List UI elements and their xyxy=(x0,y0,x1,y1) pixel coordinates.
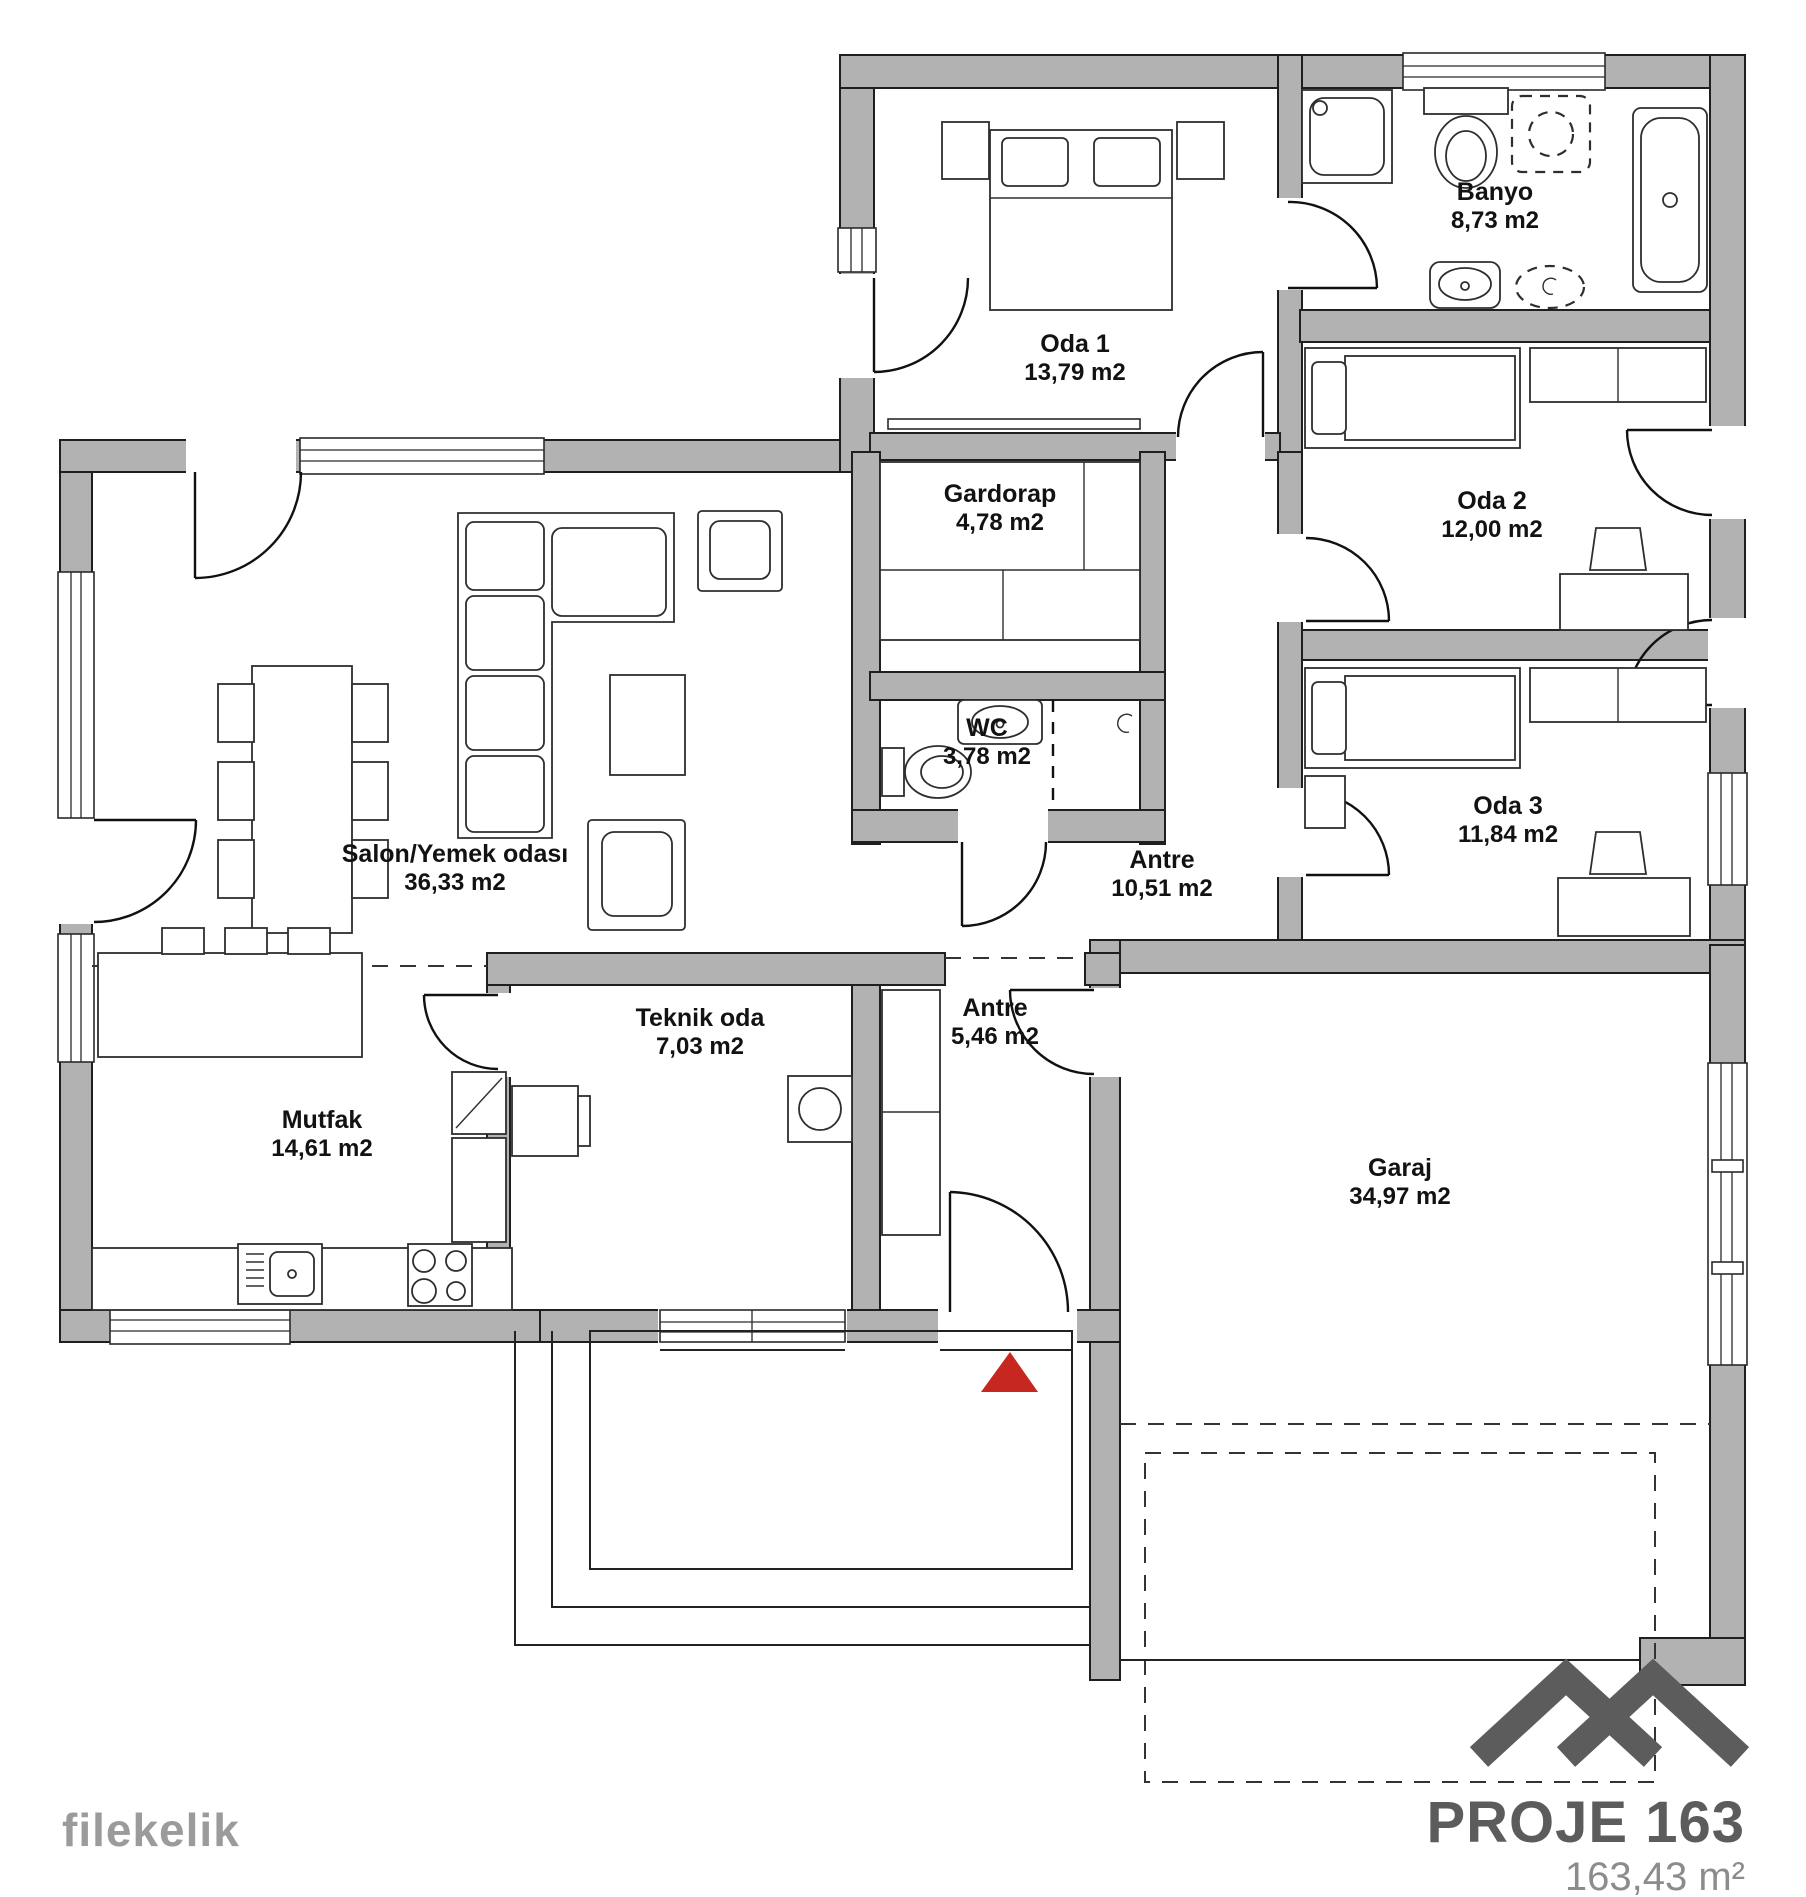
window-salon-left xyxy=(58,572,94,818)
window-garage-right xyxy=(1708,1063,1747,1365)
label-salon-area: 36,33 m2 xyxy=(404,869,505,896)
washer-dashed xyxy=(1512,96,1590,172)
floor-plan: Oda 1 13,79 m2 Banyo 8,73 m2 Gardorap 4,… xyxy=(0,0,1806,1897)
label-gardorap-area: 4,78 m2 xyxy=(956,509,1044,536)
kitchen-island-counter xyxy=(98,953,362,1057)
wardrobe xyxy=(1530,348,1706,402)
stove-cooktop xyxy=(408,1244,472,1306)
shower-tray xyxy=(1302,90,1392,183)
bar-stool xyxy=(225,928,267,954)
label-garaj-name: Garaj xyxy=(1368,1154,1432,1182)
label-antre-ust-area: 10,51 m2 xyxy=(1111,875,1212,902)
window-banyo-top xyxy=(1403,53,1605,90)
label-banyo-area: 8,73 m2 xyxy=(1451,207,1539,234)
label-garaj-area: 34,97 m2 xyxy=(1349,1183,1450,1210)
label-wc-name: WC xyxy=(966,714,1008,742)
label-mutfak-area: 14,61 m2 xyxy=(271,1135,372,1162)
label-teknik-name: Teknik oda xyxy=(636,1004,766,1032)
window-oda1-left xyxy=(838,228,876,272)
branding: filekelik PROJE 163 163,43 m² xyxy=(62,1677,1745,1897)
gardorap-top-track xyxy=(888,419,1140,429)
label-oda2-name: Oda 2 xyxy=(1457,487,1526,515)
bar-stool xyxy=(288,928,330,954)
terrace-steps xyxy=(515,1331,1640,1660)
floor-plan-page: Oda 1 13,79 m2 Banyo 8,73 m2 Gardorap 4,… xyxy=(0,0,1806,1897)
single-bed xyxy=(1305,348,1520,448)
door-main-entrance xyxy=(950,1192,1068,1312)
double-bed xyxy=(990,130,1172,310)
nightstand xyxy=(1177,122,1224,179)
antre-closet xyxy=(882,990,940,1235)
wardrobe xyxy=(1530,668,1706,722)
window-oda3-right xyxy=(1708,773,1747,885)
drain-symbol xyxy=(1118,714,1132,732)
label-wc-area: 3,78 m2 xyxy=(943,743,1031,770)
total-area: 163,43 m² xyxy=(1565,1855,1745,1897)
desk-chair xyxy=(1560,528,1688,630)
armchair-top xyxy=(698,511,782,591)
kitchen-sink xyxy=(238,1244,322,1304)
banyo-sink xyxy=(1430,262,1500,308)
label-teknik-area: 7,03 m2 xyxy=(656,1033,744,1060)
door-oda2-entry xyxy=(1306,538,1389,621)
label-antre-alt-area: 5,46 m2 xyxy=(951,1023,1039,1050)
door-salon-top xyxy=(195,472,301,578)
roof-logo-icon xyxy=(1479,1677,1740,1757)
door-oda1-south xyxy=(1178,352,1263,437)
single-bed xyxy=(1305,668,1520,768)
bar-stool xyxy=(162,928,204,954)
label-oda1-area: 13,79 m2 xyxy=(1024,359,1125,386)
boiler-unit xyxy=(512,1086,590,1156)
door-salon-terrace xyxy=(94,820,196,922)
teknik-furniture xyxy=(512,1076,852,1156)
project-name: PROJE 163 xyxy=(1426,1790,1745,1855)
window-kitchen-left xyxy=(58,934,94,1062)
window-salon-top xyxy=(300,438,544,474)
label-oda2-area: 12,00 m2 xyxy=(1441,516,1542,543)
oda1-furniture xyxy=(942,122,1224,310)
label-oda1-name: Oda 1 xyxy=(1040,330,1110,358)
label-antre-alt-name: Antre xyxy=(962,994,1027,1022)
door-oda1-west xyxy=(874,278,968,372)
banyo-toilet xyxy=(1424,88,1508,188)
dining-table xyxy=(218,666,388,933)
fridge-tall-unit xyxy=(452,1072,506,1242)
label-gardorap-name: Gardorap xyxy=(944,480,1057,508)
label-antre-ust-name: Antre xyxy=(1129,846,1194,874)
coffee-table xyxy=(610,675,685,775)
window-kitchen-bottom xyxy=(110,1308,290,1344)
label-oda3-area: 11,84 m2 xyxy=(1458,821,1558,848)
label-banyo-name: Banyo xyxy=(1457,178,1533,206)
door-oda2-balcony xyxy=(1627,430,1712,515)
watermark-filekelik: filekelik xyxy=(62,1804,240,1856)
nightstand xyxy=(942,122,989,179)
entrance-arrow xyxy=(981,1352,1038,1392)
label-oda3-name: Oda 3 xyxy=(1473,792,1542,820)
window-teknik-bottom xyxy=(660,1310,845,1342)
washing-machine xyxy=(788,1076,852,1142)
desk-chair xyxy=(1558,832,1690,936)
label-mutfak-name: Mutfak xyxy=(282,1106,363,1134)
label-salon-name: Salon/Yemek odası xyxy=(342,840,569,868)
door-wc xyxy=(962,842,1046,926)
bathtub xyxy=(1633,108,1707,292)
armchair-bottom xyxy=(588,820,685,930)
nightstand xyxy=(1305,776,1345,828)
dryer-dashed xyxy=(1516,266,1584,308)
